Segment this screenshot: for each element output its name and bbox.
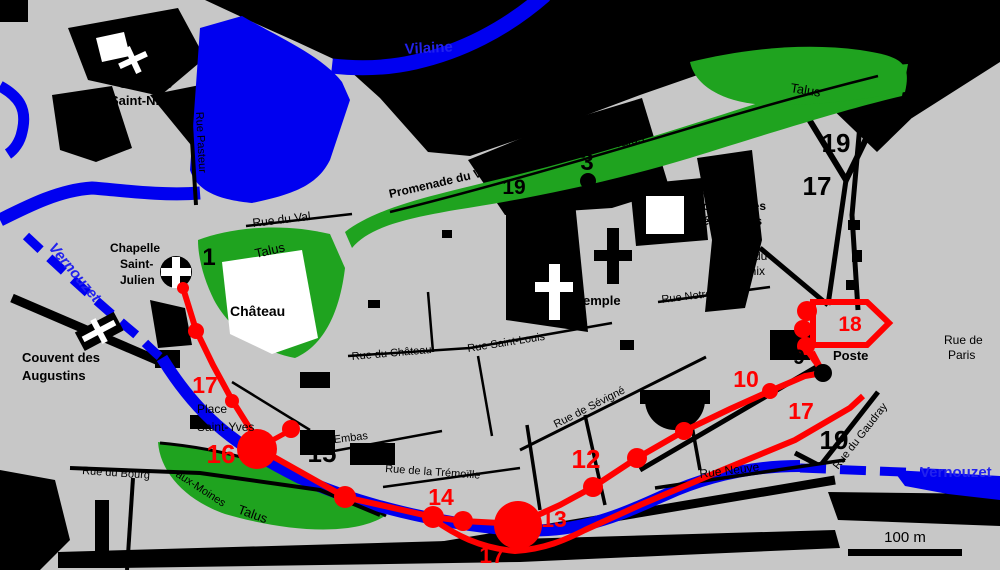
number-11: 11 xyxy=(662,390,690,420)
number-15: 15 xyxy=(308,438,337,468)
number-17-east: 17 xyxy=(788,398,814,424)
scale-bar-label: 100 m xyxy=(884,529,926,546)
label-chateau: Château xyxy=(230,303,285,319)
label-chapelle-st-nicolas-1: Chapelle xyxy=(118,76,172,91)
number-12: 12 xyxy=(572,444,601,474)
label-place-st-yves-1: Place xyxy=(197,402,227,416)
built-corner-nw xyxy=(0,0,28,22)
number-14: 14 xyxy=(428,484,454,510)
benedictins-building xyxy=(646,196,684,234)
label-rue-de-paris-2: Paris xyxy=(948,348,975,362)
label-poste: Poste xyxy=(833,348,868,363)
label-place-st-yves-2: Saint-Yves xyxy=(197,420,254,434)
number-16: 16 xyxy=(207,439,236,469)
label-chapelle-st-julien-3: Julien xyxy=(120,273,155,287)
built-temple-block xyxy=(506,202,588,332)
label-rue-de-paris-1: Rue de xyxy=(944,333,983,347)
number-13: 13 xyxy=(541,506,567,532)
number-1: 1 xyxy=(202,244,215,271)
number-17-south: 17 xyxy=(479,542,505,568)
number-18: 18 xyxy=(838,313,862,336)
label-vilaine: Vilaine xyxy=(404,39,453,58)
label-chapelle-st-julien-2: Saint- xyxy=(120,257,153,271)
number-10: 10 xyxy=(733,366,759,392)
label-vernouzet-right: Vernouzet xyxy=(920,464,992,481)
label-chapelle-st-nicolas-2: Saint-Nicolas xyxy=(110,93,192,108)
label-couvent-augustins-2: Augustins xyxy=(22,368,86,383)
number-19-se: 19 xyxy=(820,425,849,455)
tower-9-dot xyxy=(814,364,832,382)
label-place-marchix-1: Place du xyxy=(721,249,768,263)
number-17-west: 17 xyxy=(192,372,218,398)
label-place-marchix-2: Marchix xyxy=(723,264,765,278)
label-chapelle-st-julien-1: Chapelle xyxy=(110,241,160,255)
label-couvent-benedictins-2: Bénédictins xyxy=(694,214,762,228)
scale-bar-rule xyxy=(848,549,962,556)
label-couvent-augustins-1: Couvent des xyxy=(22,350,100,365)
number-3: 3 xyxy=(580,149,593,176)
label-couvent-benedictins-1: Couvent des xyxy=(694,199,766,213)
number-19-ne: 19 xyxy=(822,128,851,158)
chapelle-saint-julien-building xyxy=(160,256,192,288)
number-19-promenade: 19 xyxy=(502,176,525,199)
label-temple: Temple xyxy=(576,293,621,308)
city-wall-map: Vilaine Vernouzet Vernouzet Talus Talus … xyxy=(0,0,1000,570)
map-canvas: Vilaine Vernouzet Vernouzet Talus Talus … xyxy=(0,0,1000,570)
number-17-ne: 17 xyxy=(803,171,832,201)
number-9: 9 xyxy=(793,346,805,369)
